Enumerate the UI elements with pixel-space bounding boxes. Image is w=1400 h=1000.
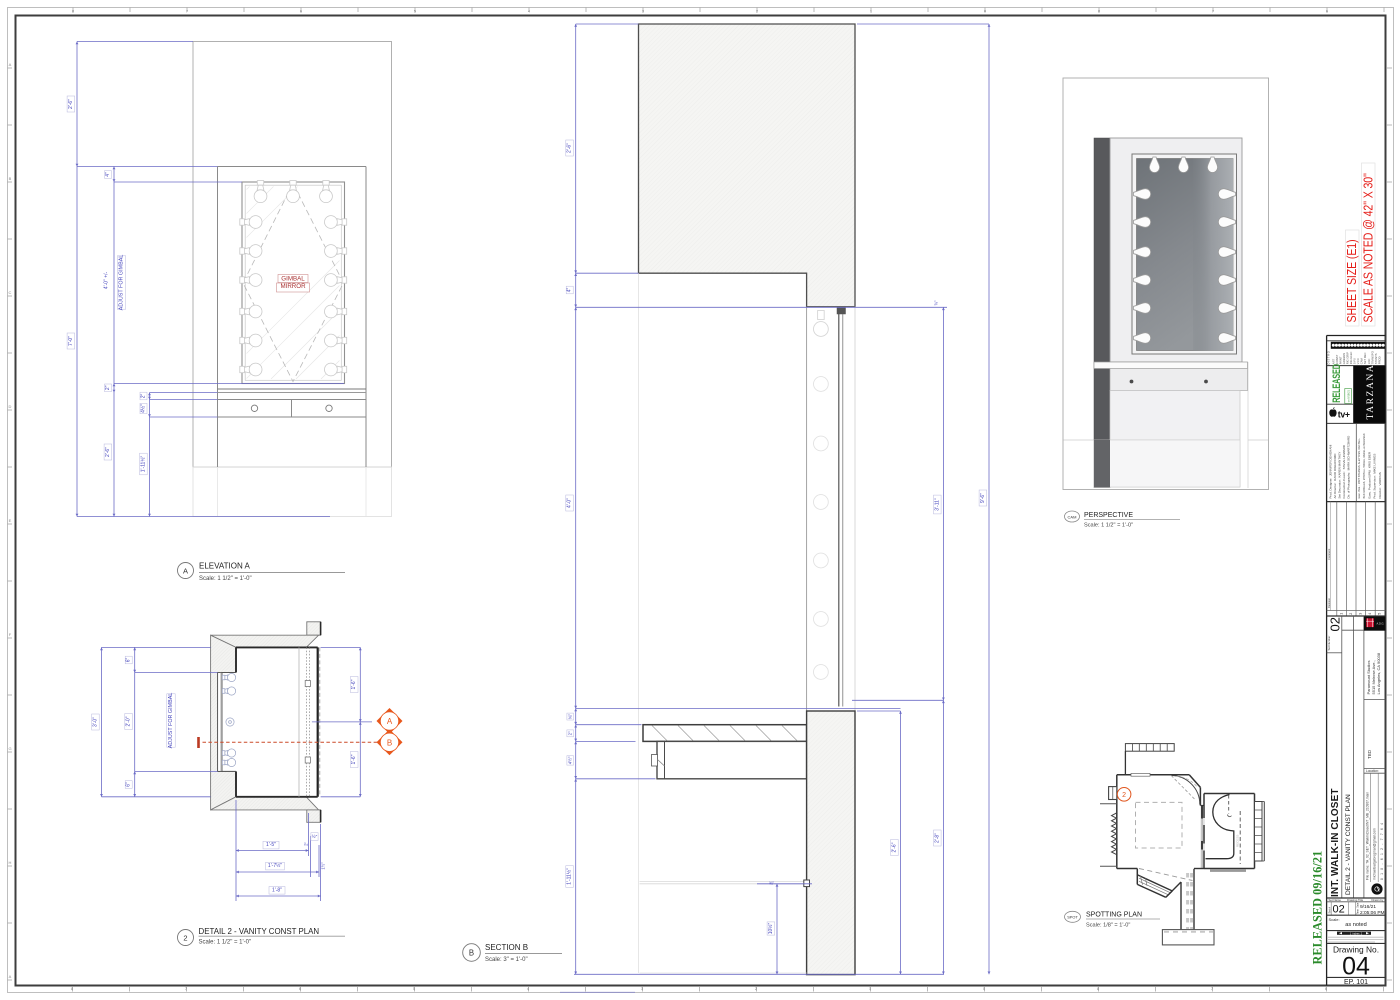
svg-text:CAM: CAM bbox=[1068, 514, 1077, 519]
svg-text:MIRROR: MIRROR bbox=[280, 283, 306, 290]
svg-text:10½": 10½" bbox=[767, 923, 774, 935]
svg-text:Prod. Supervisor: MIKE LIVING: Prod. Supervisor: MIKE LIVINGS bbox=[1373, 454, 1377, 499]
svg-text:04: 04 bbox=[1342, 953, 1370, 981]
svg-text:BEN ROSALES, MITCHELL HODGE, D: BEN ROSALES, MITCHELL HODGE, DANIELLE BE… bbox=[1363, 433, 1366, 498]
svg-text:Dir. of Photography: MARK SCH: Dir. of Photography: MARK SCHWARTZBARD bbox=[1347, 435, 1351, 499]
svg-text:Exec. Prod.: MATT SHAKMAN, AL: Exec. Prod.: MATT SHAKMAN, ALEX YVES, DA… bbox=[1358, 438, 1361, 499]
svg-text:1'-8": 1'-8" bbox=[272, 887, 282, 893]
svg-text:CAM: CAM bbox=[1360, 357, 1364, 364]
svg-text:2: 2 bbox=[183, 933, 187, 942]
svg-text:DETAIL 2 - VANITY CONST PLAN: DETAIL 2 - VANITY CONST PLAN bbox=[199, 927, 320, 936]
svg-text:2": 2" bbox=[105, 385, 111, 390]
svg-text:SET DEC: SET DEC bbox=[1363, 353, 1367, 365]
svg-text:Set Decorator: KAREN MANTHEY: Set Decorator: KAREN MANTHEY bbox=[1338, 452, 1342, 499]
svg-text:PAINT: PAINT bbox=[1338, 356, 1342, 364]
svg-text:V-FX: V-FX bbox=[1356, 358, 1360, 364]
svg-text:Exec. Producer/UPM: KRIS EBER: Exec. Producer/UPM: KRIS EBER bbox=[1367, 451, 1371, 498]
svg-text:A: A bbox=[9, 974, 12, 979]
svg-text:ELEVATION A: ELEVATION A bbox=[199, 562, 250, 571]
svg-text:4: 4 bbox=[1368, 613, 1372, 615]
svg-text:Time: Time bbox=[1356, 909, 1359, 915]
svg-text:Scale: 1 1/2" = 1'-0": Scale: 1 1/2" = 1'-0" bbox=[199, 576, 252, 582]
svg-text:4'-0" +/-: 4'-0" +/- bbox=[104, 272, 110, 290]
svg-text:B: B bbox=[469, 949, 474, 958]
svg-text:02: 02 bbox=[1328, 617, 1343, 631]
svg-text:6": 6" bbox=[126, 782, 132, 787]
svg-text:D I S T R O: D I S T R O bbox=[1326, 351, 1330, 364]
svg-text:Art Director: DAVID DIGIACOMO: Art Director: DAVID DIGIACOMO bbox=[1333, 453, 1337, 499]
svg-text:STUNTS: STUNTS bbox=[1374, 353, 1378, 364]
svg-text:9/16/21: 9/16/21 bbox=[1360, 904, 1376, 910]
svg-text:INT. WALK-IN CLOSET: INT. WALK-IN CLOSET bbox=[1330, 788, 1341, 897]
svg-text:2'-6": 2'-6" bbox=[567, 143, 573, 153]
svg-text:Scale: 3" = 1'-0": Scale: 3" = 1'-0" bbox=[485, 957, 528, 963]
svg-text:GREENS: GREENS bbox=[1342, 353, 1346, 365]
svg-text:TRANSPO: TRANSPO bbox=[1370, 351, 1374, 364]
svg-text:Location:: Location: bbox=[1366, 769, 1379, 773]
svg-text:Director: VARIOUS: Director: VARIOUS bbox=[1378, 472, 1382, 498]
svg-text:RECESS: RECESS bbox=[1236, 835, 1240, 847]
svg-text:2'-0": 2'-0" bbox=[126, 716, 132, 726]
svg-text:7'-0": 7'-0" bbox=[68, 336, 74, 346]
svg-text:Revision: Revision bbox=[1327, 597, 1331, 608]
svg-text:Scale: 1/8" = 1'-0": Scale: 1/8" = 1'-0" bbox=[1086, 922, 1130, 928]
svg-text:4½": 4½" bbox=[140, 404, 147, 413]
svg-text:PERSPECTIVE: PERSPECTIVE bbox=[1084, 512, 1133, 519]
svg-text:Set Number: Set Number bbox=[1327, 636, 1331, 651]
svg-text:PROD: PROD bbox=[1378, 356, 1382, 364]
svg-text:1: 1 bbox=[1339, 613, 1343, 615]
svg-text:A: A bbox=[387, 717, 393, 726]
svg-text:SCALE AS NOTED @ 42" X 30": SCALE AS NOTED @ 42" X 30" bbox=[1363, 173, 1376, 322]
svg-text:2": 2" bbox=[568, 731, 573, 735]
svg-text:C: C bbox=[9, 290, 12, 295]
svg-text:TARZANA: TARZANA bbox=[1366, 364, 1376, 420]
svg-text:Date: Date bbox=[1356, 902, 1359, 908]
svg-text:as noted: as noted bbox=[1345, 922, 1366, 928]
svg-text:tv+: tv+ bbox=[1338, 409, 1350, 419]
svg-text:A: A bbox=[183, 566, 188, 575]
svg-text:on 9/16/21: on 9/16/21 bbox=[1346, 389, 1350, 402]
svg-text:RELEASED 09/16/21: RELEASED 09/16/21 bbox=[1311, 851, 1325, 965]
svg-text:LOC: LOC bbox=[1367, 359, 1371, 365]
svg-text:2'-6": 2'-6" bbox=[68, 99, 74, 109]
svg-text:Scale:: Scale: bbox=[1329, 917, 1340, 922]
svg-text:RIG ELEC: RIG ELEC bbox=[1349, 352, 1353, 365]
svg-text:SHEET SIZE (E1): SHEET SIZE (E1) bbox=[1346, 239, 1359, 322]
svg-text:1'-11½": 1'-11½" bbox=[566, 868, 573, 885]
svg-text:A.D.G.: A.D.G. bbox=[1377, 622, 1385, 626]
svg-text:2'-8": 2'-8" bbox=[934, 833, 940, 843]
svg-text:ADJUST FOR GIMBAL: ADJUST FOR GIMBAL bbox=[168, 693, 174, 749]
svg-text:3: 3 bbox=[1359, 613, 1363, 615]
svg-text:9'-6": 9'-6" bbox=[980, 493, 986, 503]
svg-text:Prod. Designer: JENNIFER DEHG: Prod. Designer: JENNIFER DEHGHANI bbox=[1329, 444, 1333, 498]
svg-text:½": ½" bbox=[312, 833, 318, 839]
svg-text:D: D bbox=[9, 404, 12, 409]
svg-text:H: H bbox=[9, 860, 12, 865]
svg-text:RIG GRIP: RIG GRIP bbox=[1346, 352, 1350, 364]
svg-text:2: 2 bbox=[1122, 792, 1126, 799]
svg-text:A: A bbox=[9, 62, 12, 67]
svg-text:1'-6": 1'-6" bbox=[351, 754, 357, 764]
svg-text:2": 2" bbox=[304, 842, 309, 846]
svg-text:E: E bbox=[9, 518, 12, 523]
svg-text:1'-5": 1'-5" bbox=[266, 842, 276, 848]
svg-text:B: B bbox=[9, 176, 12, 181]
svg-text:5: 5 bbox=[1378, 613, 1382, 615]
svg-text:4": 4" bbox=[105, 172, 111, 177]
svg-text:3'-11": 3'-11" bbox=[934, 498, 940, 511]
svg-text:¾": ¾" bbox=[769, 881, 774, 886]
svg-text:1'-7½": 1'-7½" bbox=[268, 862, 282, 869]
svg-text:Scale: 1 1/2" = 1'-0": Scale: 1 1/2" = 1'-0" bbox=[1084, 523, 1133, 529]
svg-text:2: 2 bbox=[1349, 613, 1353, 615]
svg-text:SPOTTING PLAN: SPOTTING PLAN bbox=[1086, 912, 1142, 919]
svg-text:GIMBAL: GIMBAL bbox=[281, 276, 305, 283]
svg-text:1 inches 2: 1 inches 2 bbox=[1350, 932, 1363, 935]
svg-text:Comment: Comment bbox=[1327, 548, 1331, 560]
svg-text:CONST: CONST bbox=[1335, 354, 1339, 364]
svg-text:Scale: 1 1/2" = 1'-0": Scale: 1 1/2" = 1'-0" bbox=[199, 940, 252, 946]
svg-text:02: 02 bbox=[1333, 903, 1345, 915]
svg-text:RELEASED: RELEASED bbox=[1331, 364, 1344, 403]
svg-text:Construction Coord.: STEVE HO: Construction Coord.: STEVE HOWARD bbox=[1342, 444, 1346, 498]
svg-text:¾": ¾" bbox=[568, 714, 573, 720]
svg-text:8 1 8 - 6 1 2 - 7 7 6 4: 8 1 8 - 6 1 2 - 7 7 6 4 bbox=[1380, 822, 1384, 880]
svg-text:⅝": ⅝" bbox=[934, 300, 939, 305]
svg-text:2'-6": 2'-6" bbox=[891, 842, 897, 852]
svg-text:ADJUST FOR GIMBAL: ADJUST FOR GIMBAL bbox=[119, 255, 125, 311]
svg-text:2": 2" bbox=[141, 394, 147, 399]
svg-text:4": 4" bbox=[567, 288, 573, 293]
svg-text:S-FX: S-FX bbox=[1353, 358, 1357, 364]
svg-text:SPOT: SPOT bbox=[1067, 915, 1078, 920]
svg-text:3'-0": 3'-0" bbox=[92, 717, 98, 727]
svg-text:4'-0": 4'-0" bbox=[567, 498, 573, 508]
svg-text:TBD: TBD bbox=[1367, 749, 1372, 759]
svg-text:G: G bbox=[8, 746, 11, 751]
svg-text:4½": 4½" bbox=[568, 756, 573, 764]
svg-text:6": 6" bbox=[126, 658, 132, 663]
svg-text:2'-6": 2'-6" bbox=[105, 447, 111, 457]
svg-text:B: B bbox=[387, 739, 392, 748]
svg-text:Los Angeles, CA 90038: Los Angeles, CA 90038 bbox=[1376, 652, 1381, 694]
svg-text:Set #: Set # bbox=[1327, 907, 1331, 914]
svg-text:1½": 1½" bbox=[320, 862, 325, 870]
svg-text:SECTION B: SECTION B bbox=[485, 943, 528, 952]
svg-text:1'-6": 1'-6" bbox=[351, 679, 357, 689]
svg-text:EP. 101: EP. 101 bbox=[1344, 979, 1368, 986]
svg-text:DETAIL 2 - VANITY CONST PLAN: DETAIL 2 - VANITY CONST PLAN bbox=[1345, 794, 1352, 895]
svg-text:1'-11½": 1'-11½" bbox=[139, 456, 146, 473]
svg-text:michaelbudgebregman@gmail.com: michaelbudgebregman@gmail.com bbox=[1373, 828, 1377, 880]
svg-text:File name: TA_02_SET_WalkInCl: File name: TA_02_SET_WalkInClosetINT_MB_… bbox=[1365, 792, 1369, 880]
